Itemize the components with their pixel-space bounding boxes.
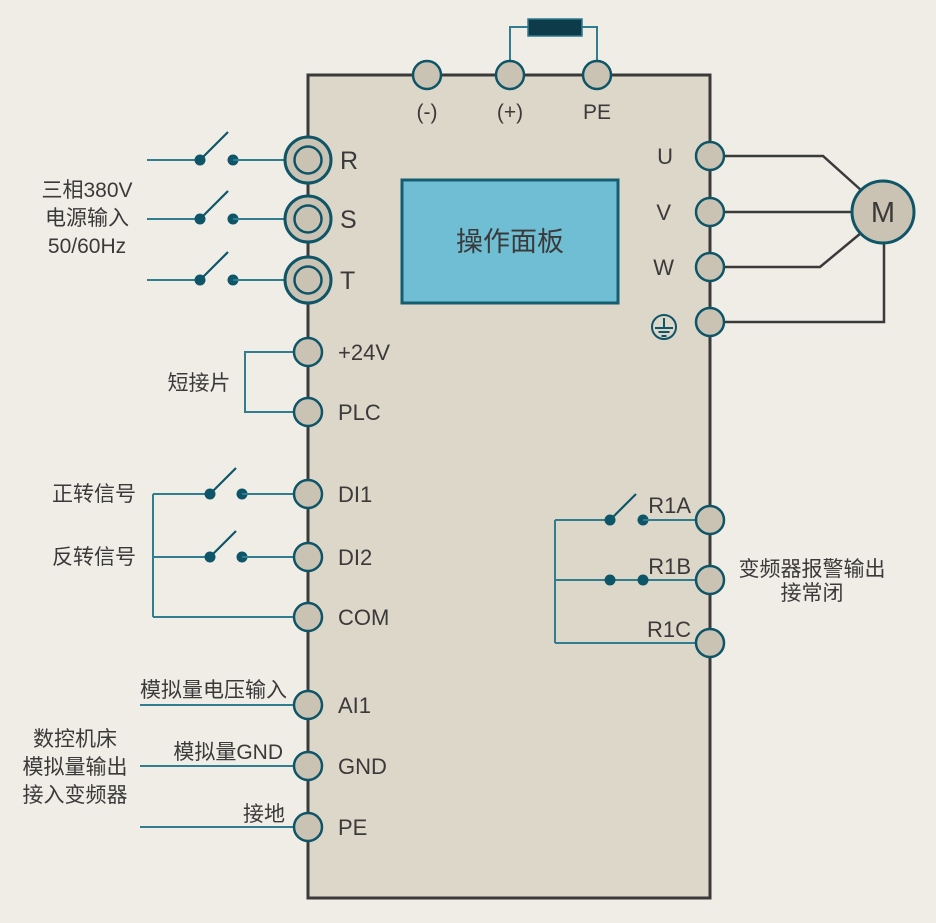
terminal-minus (413, 61, 441, 89)
r-terminal-label: R (340, 147, 358, 175)
s-terminal-label: S (340, 206, 357, 234)
com-terminal-label: COM (338, 605, 389, 630)
plus-terminal-label: (+) (497, 101, 523, 124)
terminal-w (696, 253, 724, 281)
switch-contact-dot (605, 515, 616, 526)
di2-terminal-label: DI2 (338, 545, 372, 570)
terminal-v (696, 198, 724, 226)
terminal-di2 (294, 543, 322, 571)
u-terminal-label: U (657, 144, 673, 169)
di1-terminal-label: DI1 (338, 482, 372, 507)
jumper-label: 短接片 (168, 372, 231, 395)
minus-terminal-label: (-) (417, 101, 438, 124)
power-input-label: 三相380V 电源输入 50/60Hz (41, 179, 132, 258)
terminal-outer (285, 257, 331, 303)
terminal-r (285, 137, 331, 183)
t-terminal-label: T (340, 267, 355, 295)
switch-contact-dot (205, 552, 216, 563)
terminal-earth (696, 308, 724, 336)
terminal-s (285, 196, 331, 242)
cnc-source-line3: 接入变频器 (23, 784, 128, 807)
motor: M (852, 181, 914, 243)
r1c-terminal-label: R1C (647, 617, 691, 642)
terminal-outer (285, 196, 331, 242)
terminal-t (285, 257, 331, 303)
power-input-line3: 50/60Hz (48, 235, 126, 258)
diagram-canvas: 操作面板 M (-) (+) PE 三相380V 电源输入 50/60Hz R … (0, 0, 936, 923)
cnc-source-label: 数控机床 模拟量输出 接入变频器 (23, 728, 128, 807)
r1a-terminal-label: R1A (648, 493, 691, 518)
terminal-pe-left (294, 813, 322, 841)
gnd-terminal-label: GND (338, 754, 387, 779)
reverse-signal-label: 反转信号 (52, 546, 136, 569)
ai1-terminal-label: AI1 (338, 693, 371, 718)
analog-voltage-input-label: 模拟量电压输入 (140, 679, 287, 702)
terminal-ai1 (294, 691, 322, 719)
terminal-plc (294, 398, 322, 426)
switch-contact-dot (605, 575, 616, 586)
terminal-pe-top (583, 61, 611, 89)
terminal-u (696, 142, 724, 170)
relay-output-line2: 接常闭 (781, 582, 844, 605)
terminal-outer (285, 137, 331, 183)
terminal-r1b (696, 566, 724, 594)
v-terminal-label: V (656, 200, 671, 225)
terminal-gnd (294, 752, 322, 780)
terminal-com (294, 603, 322, 631)
motor-label: M (871, 197, 895, 229)
forward-signal-label: 正转信号 (52, 483, 136, 506)
switch-contact-dot (195, 214, 206, 225)
switch-contact-dot (195, 275, 206, 286)
protective-earth-icon (652, 315, 676, 339)
plc-terminal-label: PLC (338, 400, 381, 425)
wiring-diagram: 操作面板 M (-) (+) PE 三相380V 电源输入 50/60Hz R … (0, 0, 936, 923)
power-input-line1: 三相380V (41, 179, 132, 202)
w-terminal-label: W (653, 255, 674, 280)
earth-line-label: 接地 (243, 803, 285, 826)
switch-contact-dot (195, 155, 206, 166)
terminal-r1a (696, 506, 724, 534)
cnc-source-line1: 数控机床 (33, 728, 117, 751)
pe-top-terminal-label: PE (583, 101, 611, 124)
power-input-line2: 电源输入 (45, 207, 129, 230)
brake-resistor (528, 19, 582, 36)
r1b-terminal-label: R1B (648, 554, 691, 579)
24v-terminal-label: +24V (338, 340, 390, 365)
terminal-r1c (696, 629, 724, 657)
terminal-24v (294, 338, 322, 366)
analog-gnd-label: 模拟量GND (173, 741, 283, 764)
operation-panel-label: 操作面板 (456, 227, 564, 257)
pe-left-terminal-label: PE (338, 815, 367, 840)
switch-contact-dot (638, 575, 649, 586)
operation-panel: 操作面板 (402, 180, 618, 303)
switch-contact-dot (205, 489, 216, 500)
cnc-source-line2: 模拟量输出 (23, 756, 128, 779)
terminal-di1 (294, 480, 322, 508)
relay-output-line1: 变频器报警输出 (739, 558, 886, 581)
terminal-plus (496, 61, 524, 89)
